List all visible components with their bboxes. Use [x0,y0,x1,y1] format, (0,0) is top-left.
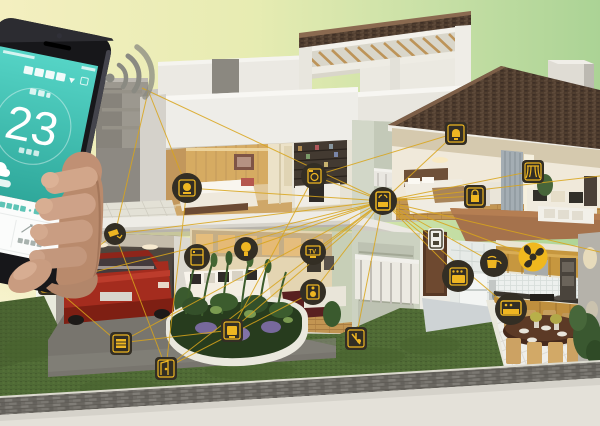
svg-text:23: 23 [1,94,63,156]
svg-text:TV: TV [309,250,317,256]
